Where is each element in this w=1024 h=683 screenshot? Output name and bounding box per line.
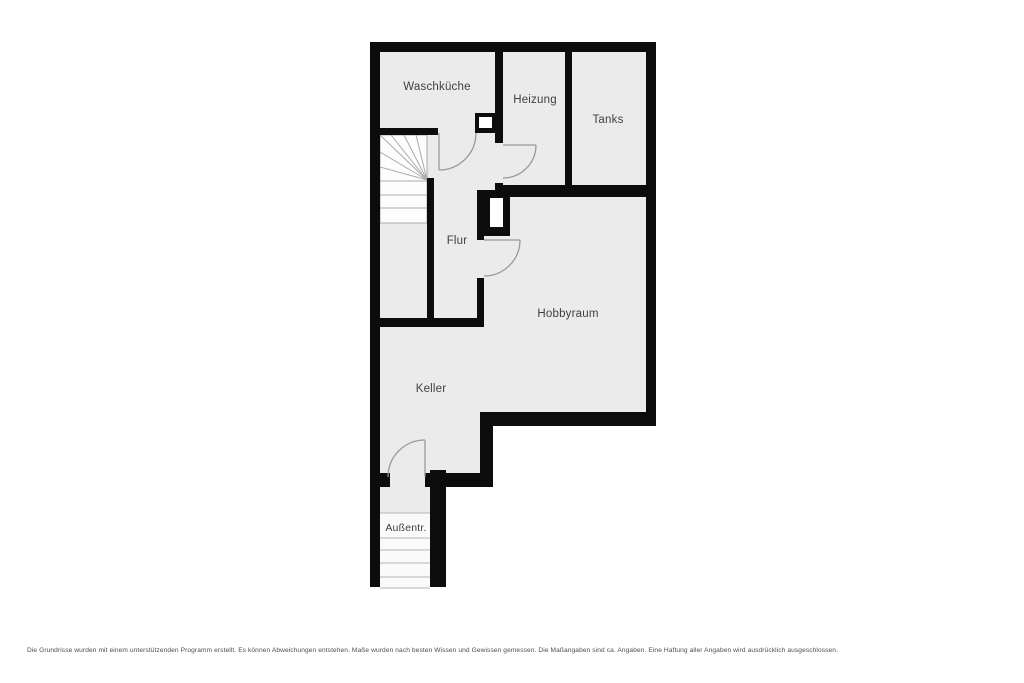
room-label-flur: Flur [447, 235, 468, 247]
wall-heizung-tanks [565, 42, 572, 197]
room-label-hobbyraum: Hobbyraum [537, 308, 598, 320]
wall-waschkueche-bottom [380, 128, 438, 135]
wall-keller-bottom-left-stub [370, 473, 390, 487]
wall-hobbyraum-top [495, 185, 646, 197]
room-label-keller: Keller [416, 383, 447, 395]
room-label-heizung: Heizung [513, 94, 557, 106]
wall-shaft-right [430, 470, 446, 587]
floorplan-drawing [0, 0, 1024, 683]
disclaimer-text: Die Grundrisse wurden mit einem unterstü… [27, 647, 838, 654]
floorplan-canvas: Waschküche Heizung Tanks Flur Hobbyraum … [0, 0, 1024, 683]
wall-flur-stair [427, 178, 434, 327]
wall-top [370, 42, 656, 52]
room-label-aussentr: Außentr. [385, 522, 426, 534]
wall-hobbyraum-bottom [480, 412, 656, 426]
room-label-waschkueche: Waschküche [403, 81, 470, 93]
wall-flur-keller [370, 318, 484, 327]
wall-left [370, 42, 380, 587]
staircase-winder [380, 135, 427, 223]
wall-right [646, 42, 656, 426]
room-label-tanks: Tanks [592, 114, 623, 126]
